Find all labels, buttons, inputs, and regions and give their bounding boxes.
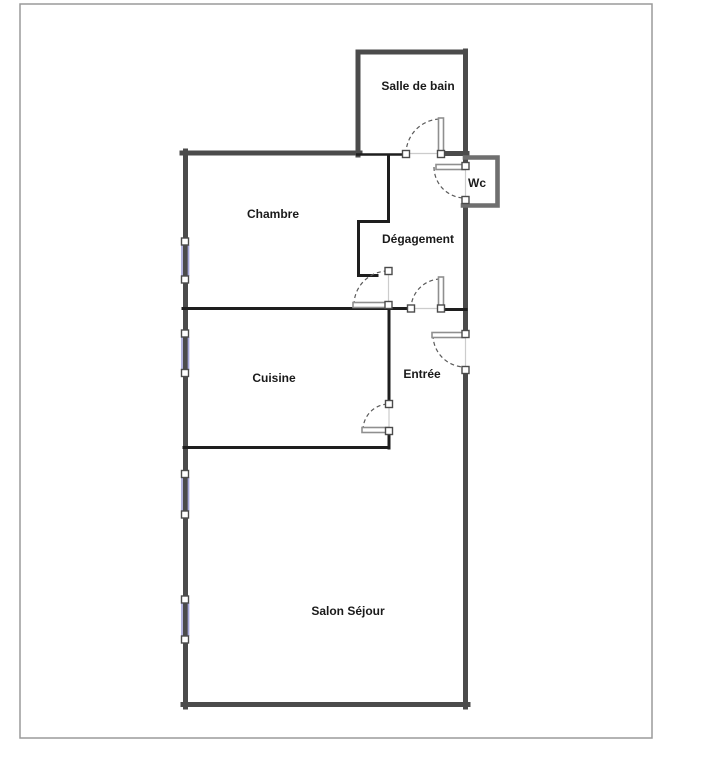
door-post bbox=[386, 428, 393, 435]
window-post bbox=[182, 511, 189, 518]
bathroom-walls bbox=[358, 52, 466, 155]
door-post bbox=[386, 401, 393, 408]
room-label-cuisine: Cuisine bbox=[252, 371, 296, 385]
room-label-degagement: Dégagement bbox=[382, 232, 454, 246]
floor-plan: Salle de bain Wc Chambre Dégagement Cuis… bbox=[0, 0, 704, 768]
door-post bbox=[462, 197, 469, 204]
room-labels: Salle de bain Wc Chambre Dégagement Cuis… bbox=[247, 79, 486, 618]
window-post bbox=[182, 238, 189, 245]
door-post bbox=[462, 163, 469, 170]
bathroom-door-arc bbox=[406, 119, 441, 154]
door-post bbox=[385, 302, 392, 309]
page-border bbox=[20, 4, 652, 738]
room-label-entree: Entrée bbox=[403, 367, 441, 381]
window-post bbox=[182, 276, 189, 283]
door-posts bbox=[385, 151, 469, 435]
interior-walls bbox=[183, 155, 466, 449]
entrance-door-arc bbox=[433, 335, 465, 367]
door-post bbox=[408, 305, 415, 312]
degagement-entree-door-arc bbox=[411, 279, 441, 309]
door-post bbox=[462, 331, 469, 338]
degagement-entree-door-leaf bbox=[439, 277, 444, 309]
wc-door-arc bbox=[434, 167, 465, 198]
room-label-salon-sejour: Salon Séjour bbox=[311, 604, 385, 618]
door-post bbox=[438, 305, 445, 312]
window-post bbox=[182, 471, 189, 478]
window-post bbox=[182, 636, 189, 643]
room-label-salle-de-bain: Salle de bain bbox=[381, 79, 454, 93]
bathroom-door-leaf bbox=[439, 118, 444, 154]
entrance-door-leaf bbox=[432, 333, 465, 338]
room-label-wc: Wc bbox=[468, 176, 486, 190]
room-label-chambre: Chambre bbox=[247, 207, 299, 221]
window-post bbox=[182, 596, 189, 603]
door-thresholds bbox=[389, 154, 466, 432]
wc-door-leaf bbox=[436, 165, 465, 170]
door-post bbox=[403, 151, 410, 158]
window-post bbox=[182, 370, 189, 377]
door-post bbox=[462, 367, 469, 374]
door-post bbox=[385, 268, 392, 275]
window-post bbox=[182, 330, 189, 337]
door-post bbox=[438, 151, 445, 158]
chambre-degagement-wall bbox=[359, 155, 389, 276]
chambre-door-leaf bbox=[353, 303, 388, 308]
